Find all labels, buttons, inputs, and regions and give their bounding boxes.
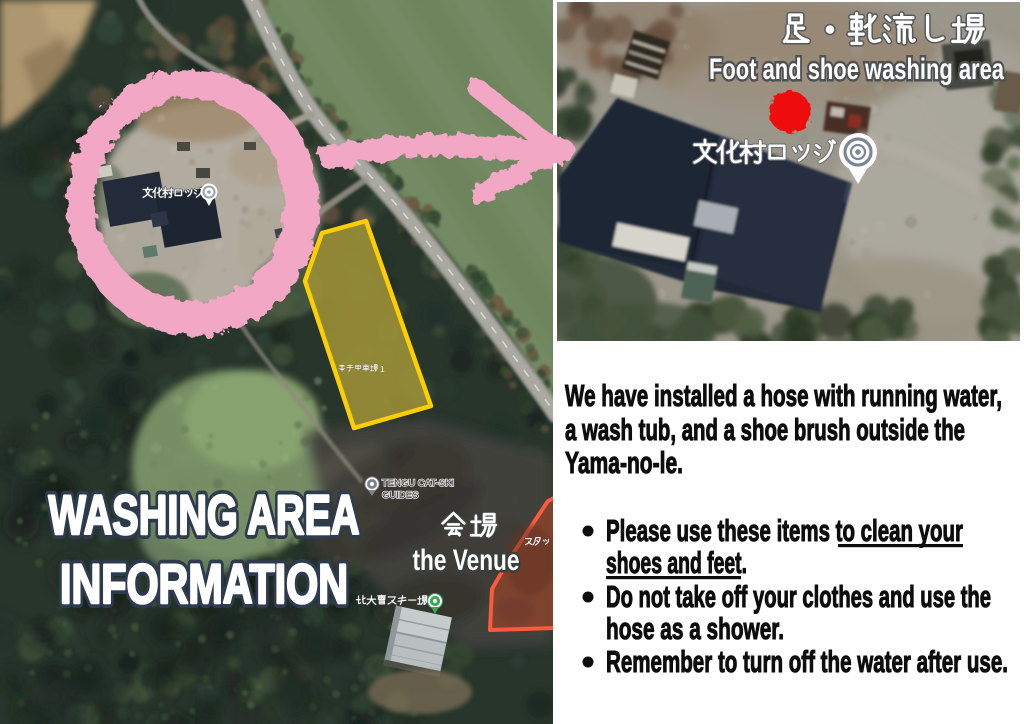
svg-text:the Venue: the Venue [413,544,520,577]
svg-text:TENGU CAT-SKI: TENGU CAT-SKI [382,478,454,489]
svg-text:Foot and shoe washing area: Foot and shoe washing area [709,53,1004,86]
svg-text:WASHING AREA: WASHING AREA [49,483,360,546]
svg-text:INFORMATION: INFORMATION [60,552,348,615]
svg-text:1: 1 [380,364,385,374]
svg-text:GUIDES: GUIDES [382,490,418,501]
